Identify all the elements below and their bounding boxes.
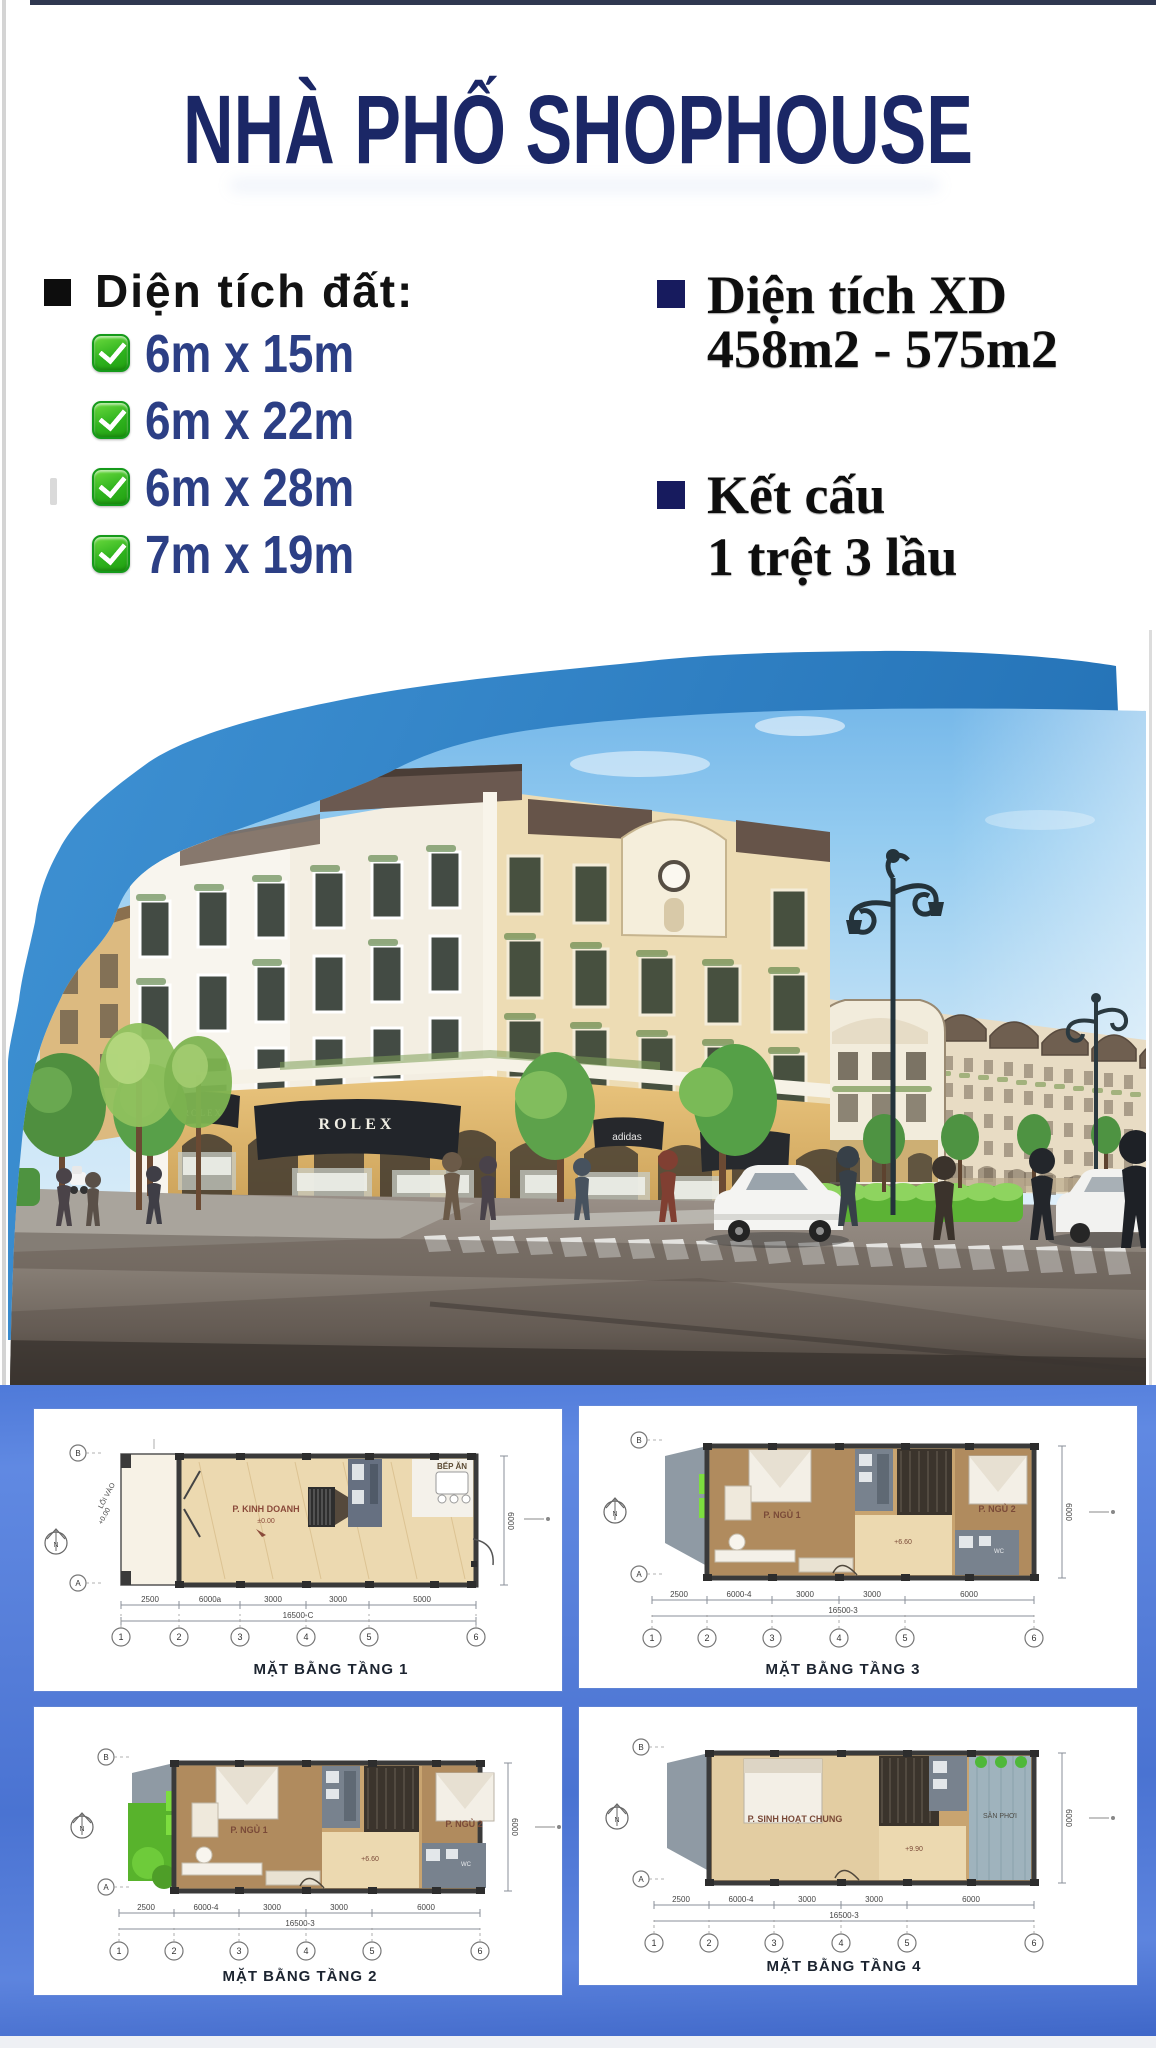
- svg-text:5: 5: [369, 1946, 374, 1956]
- svg-text:N: N: [53, 1542, 58, 1549]
- svg-text:MẶT BẰNG TẦNG 4: MẶT BẰNG TẦNG 4: [767, 1957, 922, 1975]
- svg-text:A: A: [636, 1570, 642, 1579]
- svg-text:6000-4: 6000-4: [727, 1590, 752, 1599]
- svg-text:6000-4: 6000-4: [194, 1903, 219, 1912]
- svg-text:P. KINH DOANH: P. KINH DOANH: [232, 1504, 299, 1514]
- svg-text:4: 4: [838, 1938, 843, 1948]
- svg-text:6000a: 6000a: [199, 1595, 222, 1604]
- svg-text:3000: 3000: [796, 1590, 814, 1599]
- svg-text:3000: 3000: [329, 1595, 347, 1604]
- svg-text:3000: 3000: [798, 1895, 816, 1904]
- svg-text:N: N: [612, 1511, 617, 1518]
- svg-text:3: 3: [236, 1946, 241, 1956]
- svg-text:ROLEX: ROLEX: [319, 1116, 396, 1133]
- svg-text:+0.00: +0.00: [98, 1507, 113, 1526]
- svg-text:3: 3: [769, 1633, 774, 1643]
- svg-text:+6.60: +6.60: [361, 1856, 379, 1863]
- svg-text:5: 5: [366, 1632, 371, 1642]
- svg-text:P. NGỦ 1: P. NGỦ 1: [763, 1509, 800, 1520]
- svg-text:2: 2: [704, 1633, 709, 1643]
- svg-text:A: A: [638, 1875, 644, 1884]
- svg-text:3000: 3000: [330, 1903, 348, 1912]
- svg-text:A: A: [75, 1579, 81, 1588]
- svg-text:adidas: adidas: [612, 1132, 641, 1143]
- svg-text:WC: WC: [461, 1862, 472, 1868]
- svg-text:16500-3: 16500-3: [828, 1606, 858, 1615]
- svg-text:3: 3: [771, 1938, 776, 1948]
- svg-text:1: 1: [118, 1632, 123, 1642]
- svg-text:6000: 6000: [417, 1903, 435, 1912]
- svg-text:3: 3: [237, 1632, 242, 1642]
- svg-text:SÂN PHƠI: SÂN PHƠI: [983, 1811, 1017, 1820]
- svg-text:B: B: [75, 1449, 80, 1458]
- svg-text:3000: 3000: [263, 1903, 281, 1912]
- svg-text:6000-4: 6000-4: [729, 1895, 754, 1904]
- svg-text:LỐI VÀO: LỐI VÀO: [95, 1480, 117, 1510]
- svg-text:3000: 3000: [863, 1590, 881, 1599]
- svg-text:4: 4: [303, 1946, 308, 1956]
- svg-text:P. NGỦ 1: P. NGỦ 1: [230, 1824, 267, 1835]
- svg-text:6: 6: [477, 1946, 482, 1956]
- svg-text:6000: 6000: [506, 1512, 515, 1530]
- svg-text:A: A: [103, 1883, 109, 1892]
- svg-text:P. SINH HOẠT CHUNG: P. SINH HOẠT CHUNG: [748, 1814, 843, 1824]
- svg-text:1: 1: [649, 1633, 654, 1643]
- svg-text:N: N: [79, 1826, 84, 1833]
- svg-text:4: 4: [303, 1632, 308, 1642]
- svg-text:P. NGỦ 2: P. NGỦ 2: [445, 1818, 482, 1829]
- svg-text:2500: 2500: [672, 1895, 690, 1904]
- svg-text:B: B: [638, 1743, 643, 1752]
- svg-text:16500-C: 16500-C: [283, 1611, 314, 1620]
- svg-text:+6.60: +6.60: [894, 1539, 912, 1546]
- svg-text:16500-3: 16500-3: [285, 1919, 315, 1928]
- svg-text:+9.90: +9.90: [905, 1846, 923, 1853]
- svg-text:MẶT BẰNG TẦNG 1: MẶT BẰNG TẦNG 1: [254, 1660, 409, 1678]
- svg-text:B: B: [636, 1436, 641, 1445]
- svg-text:BẾP ĂN: BẾP ĂN: [437, 1461, 467, 1471]
- svg-text:2500: 2500: [141, 1595, 159, 1604]
- svg-text:3000: 3000: [264, 1595, 282, 1604]
- svg-text:1: 1: [116, 1946, 121, 1956]
- svg-text:6: 6: [473, 1632, 478, 1642]
- svg-text:B: B: [103, 1753, 108, 1762]
- svg-text:WC: WC: [994, 1549, 1005, 1555]
- svg-text:±0.00: ±0.00: [257, 1518, 275, 1525]
- svg-text:6: 6: [1031, 1633, 1036, 1643]
- svg-text:6000: 6000: [1064, 1809, 1073, 1827]
- svg-text:2: 2: [171, 1946, 176, 1956]
- svg-text:1: 1: [651, 1938, 656, 1948]
- svg-text:2500: 2500: [670, 1590, 688, 1599]
- svg-text:5: 5: [904, 1938, 909, 1948]
- svg-text:2: 2: [176, 1632, 181, 1642]
- svg-text:MẶT BẰNG TẦNG 2: MẶT BẰNG TẦNG 2: [223, 1967, 378, 1985]
- svg-text:2: 2: [706, 1938, 711, 1948]
- svg-text:2500: 2500: [137, 1903, 155, 1912]
- svg-text:16500-3: 16500-3: [829, 1911, 859, 1920]
- svg-text:4: 4: [836, 1633, 841, 1643]
- svg-text:6000: 6000: [960, 1590, 978, 1599]
- svg-text:5000: 5000: [413, 1595, 431, 1604]
- svg-text:N: N: [614, 1817, 619, 1824]
- svg-text:6: 6: [1031, 1938, 1036, 1948]
- svg-text:3000: 3000: [865, 1895, 883, 1904]
- svg-text:6000: 6000: [1064, 1503, 1073, 1521]
- svg-text:6000: 6000: [962, 1895, 980, 1904]
- svg-text:P. NGỦ 2: P. NGỦ 2: [978, 1503, 1015, 1514]
- svg-text:MẶT BẰNG TẦNG 3: MẶT BẰNG TẦNG 3: [766, 1660, 921, 1678]
- svg-text:5: 5: [902, 1633, 907, 1643]
- svg-text:6000: 6000: [510, 1818, 519, 1836]
